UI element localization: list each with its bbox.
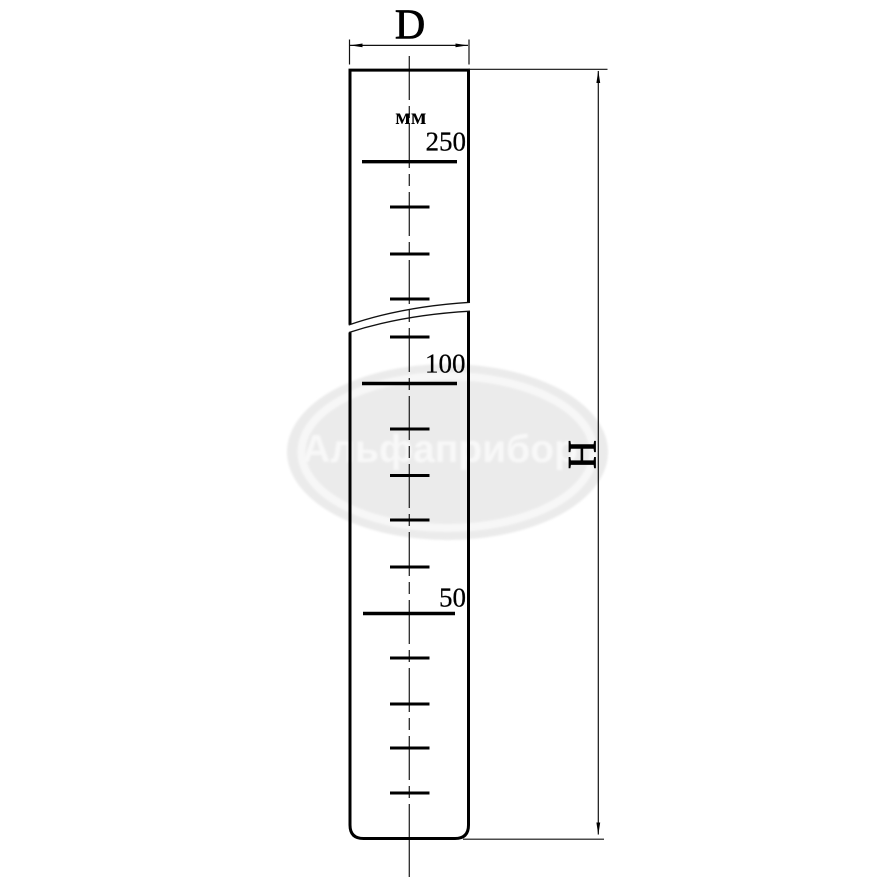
svg-text:50: 50 [439,583,466,613]
svg-text:D: D [395,3,425,49]
svg-text:250: 250 [426,127,467,157]
svg-text:Альфаприбор: Альфаприбор [302,428,578,471]
svg-text:мм: мм [395,104,426,129]
svg-text:100: 100 [425,349,466,379]
svg-text:H: H [560,440,605,469]
